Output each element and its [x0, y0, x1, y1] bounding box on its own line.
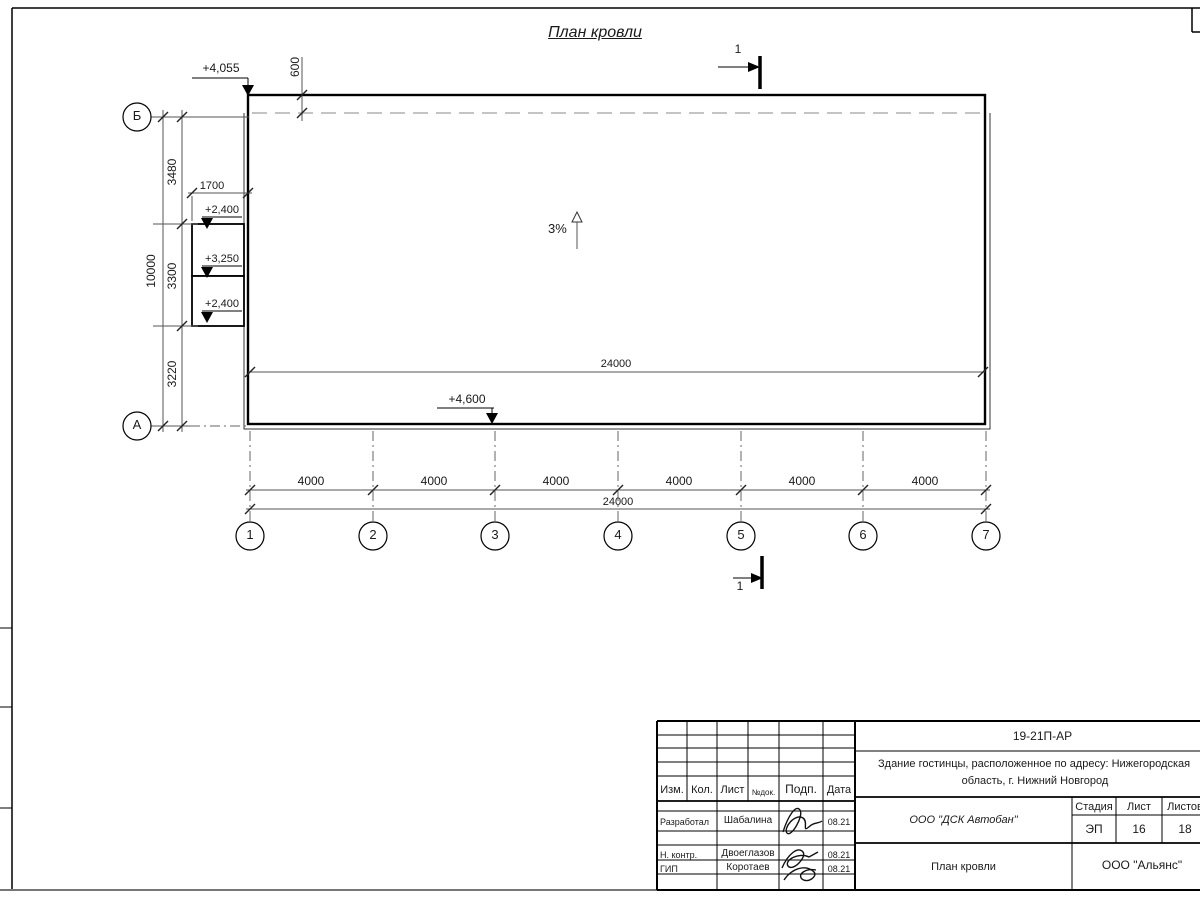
axis-label-3: 3 [483, 528, 507, 542]
tb-sheets-value: 18 [1162, 822, 1200, 836]
elevation-canopy-top: +2,400 [200, 203, 244, 217]
dim-left-3300: 3300 [165, 256, 179, 296]
dim-canopy-width: 1700 [186, 179, 238, 193]
tb-name-gip: Коротаев [717, 861, 779, 875]
dim-span-6: 4000 [895, 474, 955, 488]
tb-col-kol: Кол. [687, 783, 717, 797]
tb-date-ncontrol: 08.21 [823, 848, 855, 862]
signature-dvoyeglazov [782, 850, 818, 868]
dimension-lines [151, 57, 990, 509]
dim-left-3480: 3480 [165, 152, 179, 192]
drawing-sheet: План кровли 1 1 +4,055 600 Б А 3480 1000… [0, 0, 1200, 900]
tb-name-developer: Шабалина [717, 814, 779, 828]
tb-col-izm: Изм. [657, 783, 687, 797]
axis-label-A: А [123, 418, 151, 432]
dim-span-3: 4000 [526, 474, 586, 488]
tb-org: ООО "Альянс" [1072, 858, 1200, 872]
tb-col-ndok: №док. [748, 786, 779, 800]
tb-name-ncontrol: Двоеглазов [717, 847, 779, 861]
tb-project-name-line2: область, г. Нижний Новгород [855, 774, 1200, 788]
tb-col-list: Лист [717, 783, 748, 797]
axis-label-2: 2 [361, 528, 385, 542]
elevation-canopy-bottom: +2,400 [200, 297, 244, 311]
dim-span-4: 4000 [649, 474, 709, 488]
roof-outline [244, 95, 990, 429]
dim-span-5: 4000 [772, 474, 832, 488]
tb-drawing-name: План кровли [855, 860, 1072, 874]
axis-label-1: 1 [238, 528, 262, 542]
axis-label-6: 6 [851, 528, 875, 542]
dim-left-3220: 3220 [165, 354, 179, 394]
dim-left-total: 10000 [144, 246, 158, 296]
tb-stage-value: ЭП [1072, 822, 1116, 836]
elevation-canopy-mid: +3,250 [200, 252, 244, 266]
dim-span-1: 4000 [281, 474, 341, 488]
tb-role-gip: ГИП [660, 862, 678, 876]
tb-role-ncontrol: Н. контр. [660, 848, 697, 862]
elevation-top-left: +4,055 [194, 61, 248, 75]
dimension-ticks [158, 90, 991, 514]
dim-span-2: 4000 [404, 474, 464, 488]
slope-label: 3% [548, 222, 567, 236]
axis-label-B: Б [123, 109, 151, 123]
section-mark-label-bottom: 1 [730, 579, 750, 593]
slope-arrow-icon [572, 212, 582, 249]
tb-project-name-line1: Здание гостинцы, расположенное по адресу… [878, 757, 1190, 771]
axis-label-7: 7 [974, 528, 998, 542]
tb-date-developer: 08.21 [823, 815, 855, 829]
dim-overhang: 600 [288, 47, 302, 87]
tb-date-gip: 08.21 [823, 862, 855, 876]
section-mark-label-top: 1 [728, 42, 748, 56]
axis-label-5: 5 [729, 528, 753, 542]
elevation-bottom: +4,600 [441, 392, 493, 406]
axis-label-4: 4 [606, 528, 630, 542]
signature-shabalina [783, 808, 822, 833]
page-title: План кровли [520, 26, 670, 40]
tb-sheet-value: 16 [1116, 822, 1162, 836]
tb-col-data: Дата [823, 783, 855, 797]
tb-role-developer: Разработал [660, 815, 709, 829]
tb-sheets-label: Листов [1162, 800, 1200, 814]
tb-col-podp: Подп. [779, 782, 823, 796]
tb-stage-label: Стадия [1072, 800, 1116, 814]
tb-doc-number: 19-21П-АР [855, 729, 1200, 743]
dim-inner-total: 24000 [576, 357, 656, 371]
tb-company: ООО "ДСК Автобан" [855, 813, 1072, 827]
tb-sheet-label: Лист [1116, 800, 1162, 814]
dim-bottom-total: 24000 [578, 495, 658, 509]
